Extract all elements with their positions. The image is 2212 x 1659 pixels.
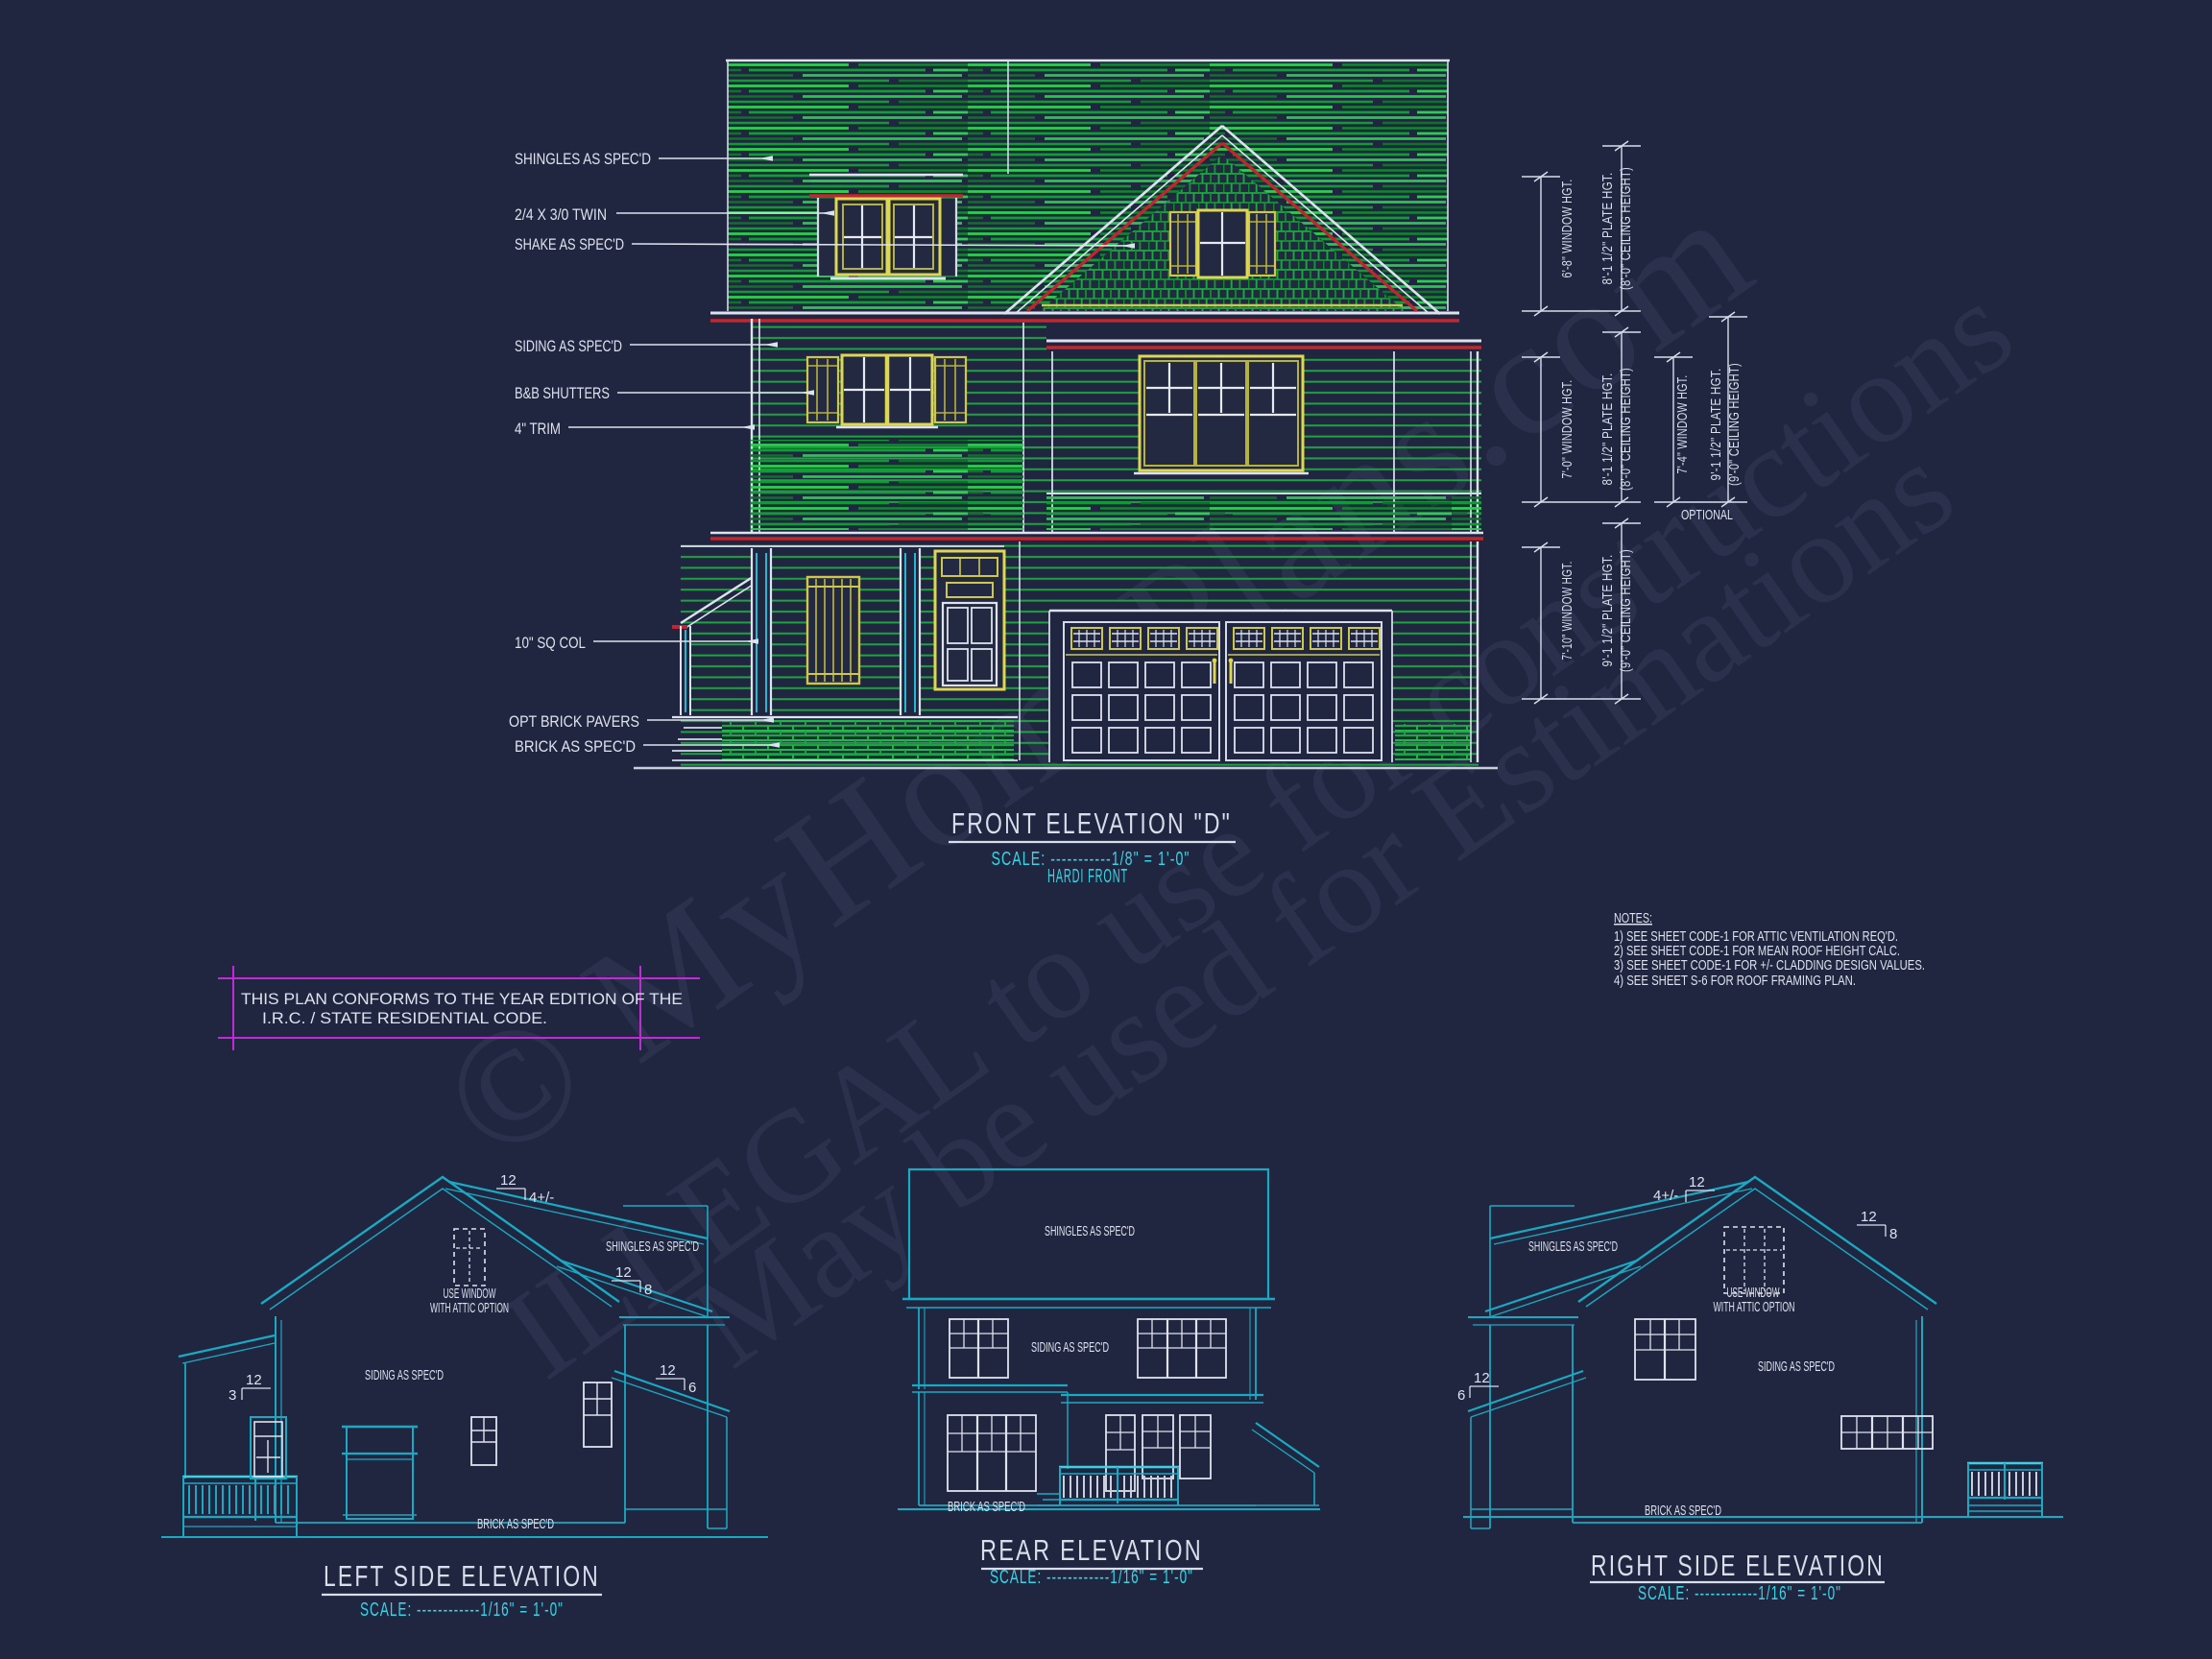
svg-text:12: 12 bbox=[1689, 1174, 1705, 1190]
svg-text:4+/-: 4+/- bbox=[529, 1190, 554, 1206]
svg-text:SHINGLES AS SPEC'D: SHINGLES AS SPEC'D bbox=[606, 1238, 699, 1255]
svg-text:12: 12 bbox=[500, 1172, 517, 1189]
svg-text:(9'-0" CEILING HEIGHT): (9'-0" CEILING HEIGHT) bbox=[1619, 549, 1634, 672]
svg-text:12: 12 bbox=[246, 1372, 262, 1388]
svg-text:BRICK AS SPEC'D: BRICK AS SPEC'D bbox=[948, 1499, 1025, 1515]
svg-text:THIS PLAN CONFORMS TO THE YEAR: THIS PLAN CONFORMS TO THE YEAR EDITION O… bbox=[241, 991, 683, 1008]
svg-text:SHINGLES AS SPEC'D: SHINGLES AS SPEC'D bbox=[1528, 1238, 1618, 1255]
svg-text:9'-1 1/2" PLATE HGT.: 9'-1 1/2" PLATE HGT. bbox=[1709, 369, 1724, 481]
svg-text:7'-10" WINDOW HGT.: 7'-10" WINDOW HGT. bbox=[1560, 562, 1575, 661]
svg-text:NOTES:: NOTES: bbox=[1614, 910, 1652, 926]
svg-text:SHAKE AS SPEC'D: SHAKE AS SPEC'D bbox=[515, 236, 624, 253]
svg-text:RIGHT SIDE ELEVATION: RIGHT SIDE ELEVATION bbox=[1591, 1549, 1885, 1582]
svg-text:FRONT ELEVATION "D": FRONT ELEVATION "D" bbox=[951, 806, 1232, 840]
svg-text:(9'-0" CEILING HEIGHT): (9'-0" CEILING HEIGHT) bbox=[1727, 363, 1743, 486]
svg-text:12: 12 bbox=[660, 1362, 676, 1379]
svg-text:SHINGLES AS SPEC'D: SHINGLES AS SPEC'D bbox=[1045, 1223, 1135, 1239]
svg-text:SIDING AS SPEC'D: SIDING AS SPEC'D bbox=[1031, 1339, 1109, 1356]
svg-text:BRICK AS SPEC'D: BRICK AS SPEC'D bbox=[1645, 1503, 1721, 1519]
svg-text:6: 6 bbox=[688, 1380, 696, 1396]
svg-text:SHINGLES AS SPEC'D: SHINGLES AS SPEC'D bbox=[515, 151, 651, 168]
svg-text:SCALE: ------------1/16" = 1'-: SCALE: ------------1/16" = 1'-0" bbox=[1638, 1583, 1841, 1604]
svg-text:BRICK AS SPEC'D: BRICK AS SPEC'D bbox=[515, 738, 636, 756]
svg-text:SIDING AS SPEC'D: SIDING AS SPEC'D bbox=[365, 1367, 444, 1383]
svg-text:4" TRIM: 4" TRIM bbox=[515, 421, 561, 438]
svg-text:OPTIONAL: OPTIONAL bbox=[1681, 507, 1733, 523]
svg-text:3: 3 bbox=[228, 1387, 236, 1404]
svg-text:8: 8 bbox=[644, 1282, 652, 1298]
svg-text:WITH ATTIC OPTION: WITH ATTIC OPTION bbox=[1714, 1299, 1795, 1315]
svg-text:4+/-: 4+/- bbox=[1653, 1188, 1678, 1204]
svg-text:WITH ATTIC OPTION: WITH ATTIC OPTION bbox=[430, 1300, 509, 1316]
svg-text:7'-0" WINDOW HGT.: 7'-0" WINDOW HGT. bbox=[1560, 380, 1575, 479]
svg-text:10" SQ COL: 10" SQ COL bbox=[515, 635, 586, 652]
svg-text:(8'-0" CEILING HEIGHT): (8'-0" CEILING HEIGHT) bbox=[1619, 167, 1634, 290]
svg-text:HARDI FRONT: HARDI FRONT bbox=[1047, 866, 1128, 887]
svg-text:SIDING AS SPEC'D: SIDING AS SPEC'D bbox=[1758, 1358, 1835, 1375]
svg-text:B&B SHUTTERS: B&B SHUTTERS bbox=[515, 385, 610, 402]
svg-text:9'-1 1/2" PLATE HGT.: 9'-1 1/2" PLATE HGT. bbox=[1600, 555, 1616, 667]
svg-text:8'-1 1/2" PLATE HGT.: 8'-1 1/2" PLATE HGT. bbox=[1600, 373, 1616, 486]
svg-text:12: 12 bbox=[1861, 1209, 1877, 1225]
svg-text:12: 12 bbox=[615, 1264, 632, 1281]
svg-text:(8'-0" CEILING HEIGHT): (8'-0" CEILING HEIGHT) bbox=[1619, 368, 1634, 491]
svg-text:7'-4" WINDOW HGT.: 7'-4" WINDOW HGT. bbox=[1675, 375, 1691, 474]
svg-text:LEFT SIDE ELEVATION: LEFT SIDE ELEVATION bbox=[324, 1559, 600, 1593]
svg-text:3) SEE SHEET CODE-1 FOR +/- C: 3) SEE SHEET CODE-1 FOR +/- CLADDING DES… bbox=[1614, 957, 1925, 974]
svg-text:2/4 X 3/0 TWIN: 2/4 X 3/0 TWIN bbox=[515, 206, 607, 224]
svg-text:SCALE: ------------1/16" = 1'-: SCALE: ------------1/16" = 1'-0" bbox=[990, 1567, 1193, 1588]
svg-text:12: 12 bbox=[1474, 1370, 1490, 1386]
svg-text:4) SEE SHEET S-6 FOR ROOF FRA: 4) SEE SHEET S-6 FOR ROOF FRAMING PLAN. bbox=[1614, 973, 1856, 989]
svg-text:BRICK AS SPEC'D: BRICK AS SPEC'D bbox=[477, 1516, 554, 1532]
svg-text:SIDING AS SPEC'D: SIDING AS SPEC'D bbox=[515, 338, 622, 355]
svg-text:6: 6 bbox=[1457, 1387, 1465, 1404]
svg-text:REAR ELEVATION: REAR ELEVATION bbox=[980, 1533, 1203, 1567]
svg-text:8'-1 1/2" PLATE HGT.: 8'-1 1/2" PLATE HGT. bbox=[1600, 173, 1616, 285]
svg-text:6'-8" WINDOW HGT.: 6'-8" WINDOW HGT. bbox=[1560, 180, 1575, 278]
svg-text:I.R.C. / STATE RESIDENTIAL COD: I.R.C. / STATE RESIDENTIAL CODE. bbox=[262, 1010, 547, 1027]
svg-text:OPT BRICK PAVERS: OPT BRICK PAVERS bbox=[509, 713, 639, 731]
svg-text:8: 8 bbox=[1889, 1226, 1897, 1242]
svg-text:SCALE: ------------1/16" = 1'-: SCALE: ------------1/16" = 1'-0" bbox=[360, 1599, 564, 1621]
